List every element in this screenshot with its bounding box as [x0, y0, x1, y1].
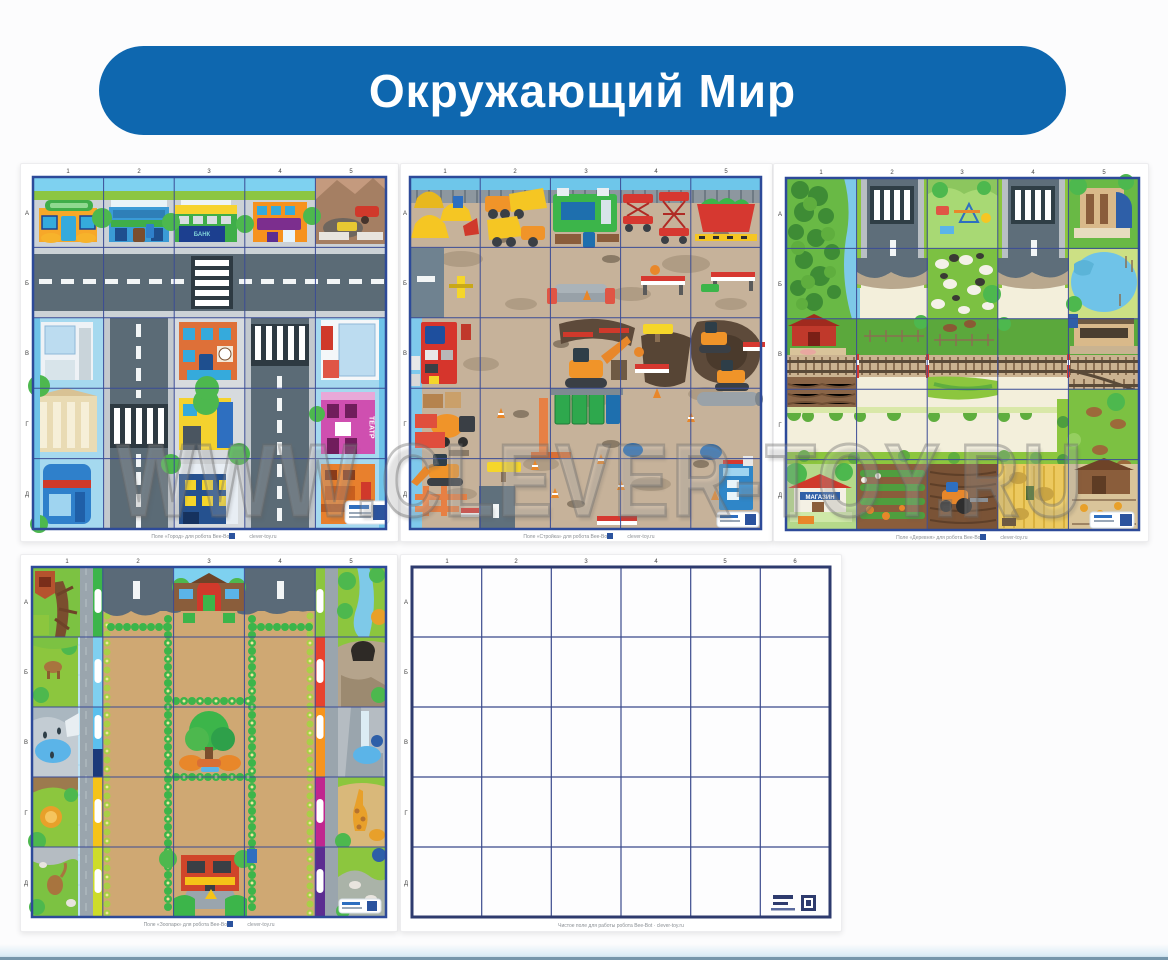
svg-text:В: В	[403, 351, 407, 357]
svg-text:Д: Д	[25, 492, 29, 498]
svg-text:А: А	[403, 211, 407, 217]
svg-text:Г: Г	[24, 811, 28, 817]
svg-text:Б: Б	[778, 282, 782, 288]
svg-text:4: 4	[654, 169, 658, 175]
svg-text:Б: Б	[403, 281, 407, 287]
svg-text:Чистое поле для работы робота: Чистое поле для работы робота Bee-Bot · …	[558, 923, 684, 929]
svg-text:Г: Г	[404, 811, 408, 817]
svg-text:3: 3	[584, 559, 588, 565]
svg-text:2: 2	[890, 170, 894, 176]
svg-text:А: А	[24, 600, 28, 606]
svg-text:А: А	[778, 212, 782, 218]
svg-text:2: 2	[514, 559, 518, 565]
svg-text:5: 5	[724, 169, 728, 175]
svg-text:3: 3	[207, 169, 211, 175]
svg-text:clever-toy.ru: clever-toy.ru	[247, 922, 274, 928]
svg-text:В: В	[778, 352, 782, 358]
svg-text:А: А	[404, 600, 408, 606]
svg-text:6: 6	[793, 559, 797, 565]
svg-text:4: 4	[278, 559, 282, 565]
svg-text:2: 2	[513, 169, 517, 175]
svg-text:Поле «Зоопарк» для робота Bee-: Поле «Зоопарк» для робота Bee-Bot	[144, 922, 229, 928]
svg-text:1: 1	[65, 559, 69, 565]
svg-text:Д: Д	[24, 881, 28, 887]
svg-text:5: 5	[349, 169, 353, 175]
svg-text:А: А	[25, 211, 29, 217]
svg-text:5: 5	[723, 559, 727, 565]
svg-text:3: 3	[960, 170, 964, 176]
svg-text:1: 1	[445, 559, 449, 565]
svg-text:4: 4	[1031, 170, 1035, 176]
svg-text:3: 3	[584, 169, 588, 175]
svg-text:1: 1	[443, 169, 447, 175]
svg-text:4: 4	[654, 559, 658, 565]
svg-text:Д: Д	[404, 881, 408, 887]
svg-text:5: 5	[349, 559, 353, 565]
svg-text:Б: Б	[24, 670, 28, 676]
svg-text:БАНК: БАНК	[194, 232, 211, 238]
svg-text:2: 2	[136, 559, 140, 565]
svg-text:В: В	[25, 351, 29, 357]
svg-text:Г: Г	[25, 422, 29, 428]
svg-text:Б: Б	[404, 670, 408, 676]
svg-text:5: 5	[1102, 170, 1106, 176]
svg-text:В: В	[24, 740, 28, 746]
svg-text:В: В	[404, 740, 408, 746]
svg-text:1: 1	[66, 169, 70, 175]
svg-text:1: 1	[819, 170, 823, 176]
svg-text:Б: Б	[25, 281, 29, 287]
svg-text:2: 2	[137, 169, 141, 175]
svg-text:4: 4	[278, 169, 282, 175]
svg-text:3: 3	[207, 559, 211, 565]
